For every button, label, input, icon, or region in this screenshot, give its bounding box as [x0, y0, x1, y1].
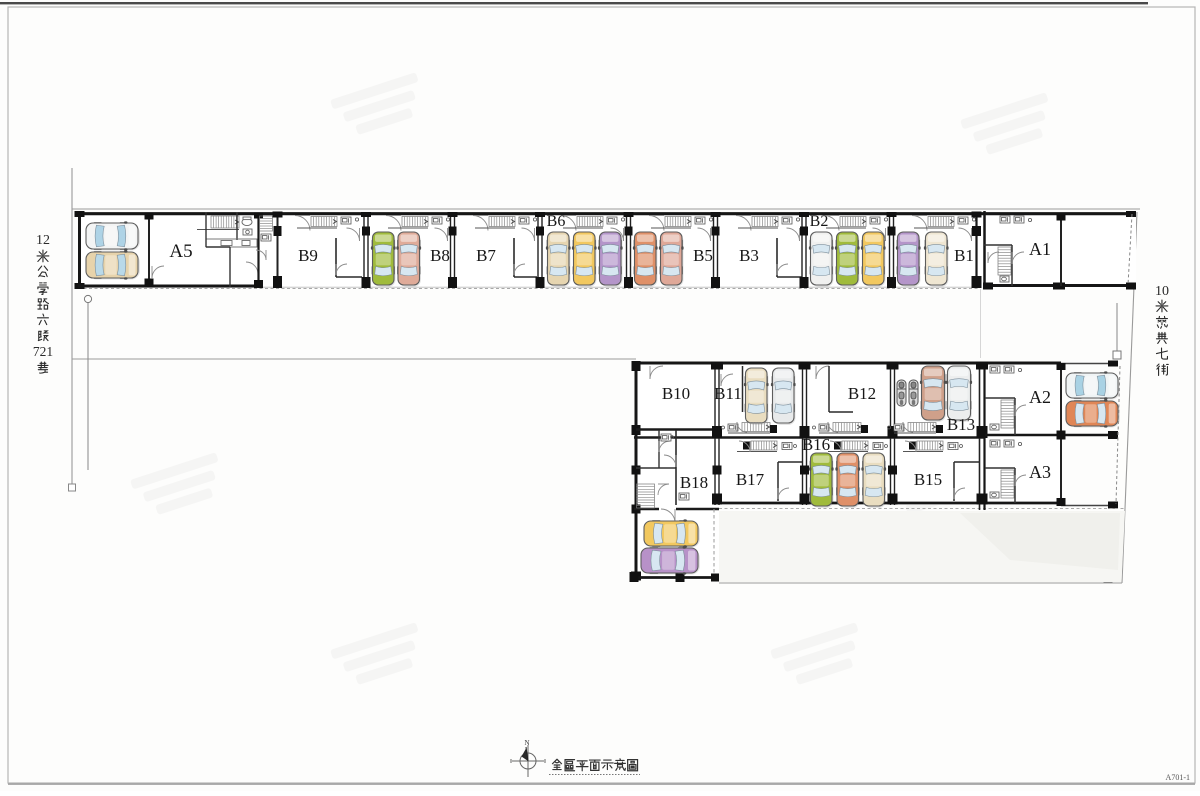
svg-text:721: 721: [33, 344, 53, 359]
svg-text:B7: B7: [476, 246, 496, 265]
svg-text:A701-1: A701-1: [1166, 773, 1190, 782]
svg-text:B11: B11: [714, 384, 742, 403]
svg-text:B3: B3: [739, 246, 759, 265]
svg-text:N: N: [524, 739, 529, 747]
svg-text:B16: B16: [802, 435, 830, 454]
svg-text:B1: B1: [954, 246, 974, 265]
svg-text:A1: A1: [1029, 239, 1051, 259]
svg-text:A5: A5: [169, 241, 192, 262]
svg-text:B5: B5: [693, 246, 713, 265]
svg-text:10: 10: [1155, 284, 1169, 299]
svg-text:B10: B10: [662, 384, 690, 403]
svg-text:A3: A3: [1029, 462, 1051, 482]
svg-text:12: 12: [36, 233, 50, 248]
svg-text:B13: B13: [947, 415, 975, 434]
svg-text:A2: A2: [1029, 387, 1051, 407]
svg-text:B6: B6: [547, 213, 566, 230]
svg-text:B15: B15: [914, 470, 942, 489]
svg-text:B12: B12: [848, 384, 876, 403]
svg-text:B18: B18: [680, 473, 708, 492]
svg-text:B2: B2: [810, 213, 829, 230]
svg-text:B8: B8: [430, 246, 450, 265]
svg-text:B9: B9: [298, 246, 318, 265]
svg-text:B17: B17: [736, 470, 765, 489]
